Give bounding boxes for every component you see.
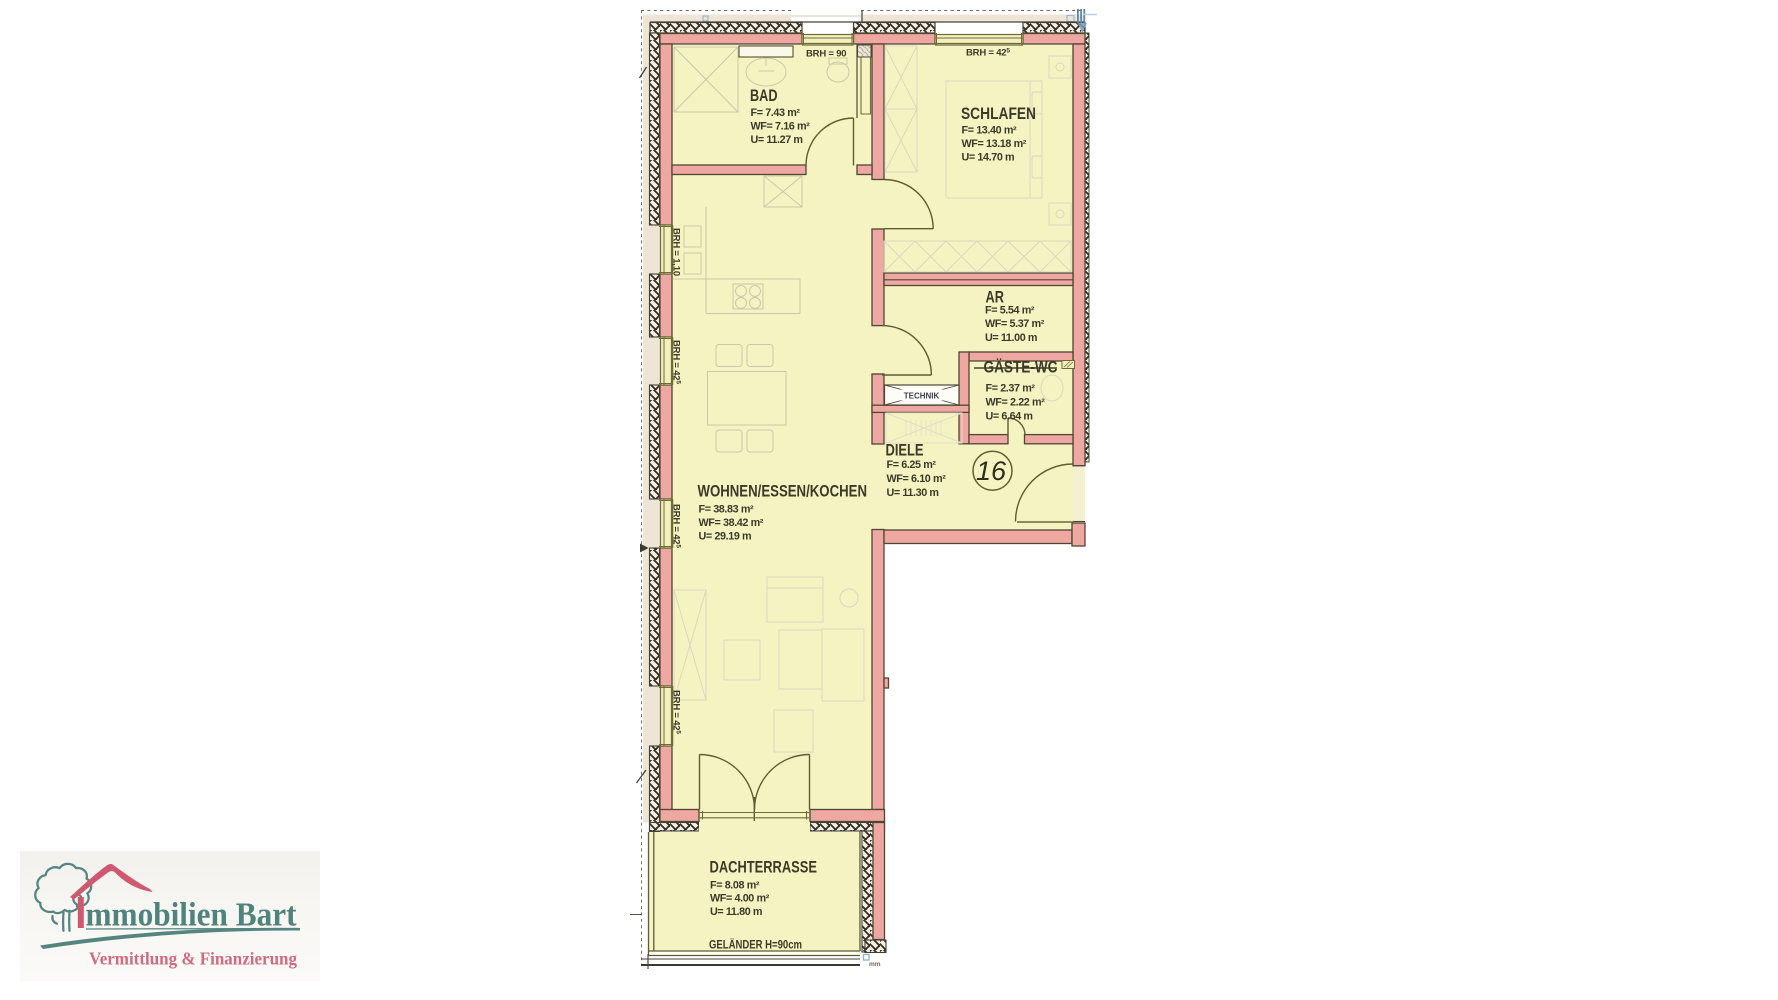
svg-text:U= 6.64 m: U= 6.64 m [986, 411, 1033, 423]
svg-text:WF= 7.16 m²: WF= 7.16 m² [751, 121, 811, 133]
svg-text:DIELE: DIELE [886, 442, 924, 460]
svg-text:WF= 5.37 m²: WF= 5.37 m² [985, 318, 1045, 330]
svg-text:F= 38.83 m²: F= 38.83 m² [699, 504, 755, 516]
svg-text:F= 6.25 m²: F= 6.25 m² [887, 459, 937, 471]
svg-text:U= 11.27 m: U= 11.27 m [751, 134, 803, 146]
svg-text:DACHTERRASSE: DACHTERRASSE [710, 859, 818, 877]
svg-text:16: 16 [976, 456, 1007, 486]
svg-text:U= 29.19 m: U= 29.19 m [699, 531, 752, 543]
svg-text:WF= 2.22 m²: WF= 2.22 m² [986, 397, 1046, 409]
svg-text:mm: mm [869, 961, 881, 968]
svg-text:U= 11.00 m: U= 11.00 m [985, 332, 1037, 344]
svg-text:WOHNEN/ESSEN/KOCHEN: WOHNEN/ESSEN/KOCHEN [698, 483, 868, 501]
svg-text:U= 11.80 m: U= 11.80 m [710, 906, 762, 918]
svg-text:U= 11.30 m: U= 11.30 m [887, 487, 939, 499]
svg-text:F= 7.43 m²: F= 7.43 m² [751, 107, 801, 119]
svg-text:BRH = 425: BRH = 425 [671, 504, 682, 548]
svg-text:Vermittlung & Finanzierung: Vermittlung & Finanzierung [89, 949, 297, 969]
svg-text:WF= 13.18 m²: WF= 13.18 m² [962, 138, 1027, 150]
svg-text:WF= 38.42 m²: WF= 38.42 m² [699, 517, 764, 529]
svg-text:BRH = 90: BRH = 90 [806, 49, 846, 60]
svg-text:BRH = 425: BRH = 425 [671, 690, 682, 734]
svg-text:F= 5.54 m²: F= 5.54 m² [985, 305, 1035, 317]
svg-text:TECHNIK: TECHNIK [904, 392, 940, 401]
svg-text:SCHLAFEN: SCHLAFEN [961, 105, 1036, 123]
svg-text:F= 8.08 m²: F= 8.08 m² [710, 880, 760, 892]
svg-text:BRH = 425: BRH = 425 [671, 340, 682, 384]
svg-text:WF= 6.10 m²: WF= 6.10 m² [887, 473, 947, 485]
svg-text:F= 2.37 m²: F= 2.37 m² [986, 383, 1036, 395]
svg-text:BRH = 1,10: BRH = 1,10 [671, 228, 682, 276]
svg-text:BRH = 425: BRH = 425 [966, 48, 1010, 59]
svg-text:GELÄNDER H=90cm: GELÄNDER H=90cm [709, 939, 802, 952]
svg-text:BAD: BAD [750, 87, 778, 105]
svg-text:U= 14.70 m: U= 14.70 m [962, 152, 1015, 164]
svg-text:WF= 4.00 m²: WF= 4.00 m² [710, 893, 770, 905]
svg-text:F= 13.40 m²: F= 13.40 m² [962, 125, 1018, 137]
